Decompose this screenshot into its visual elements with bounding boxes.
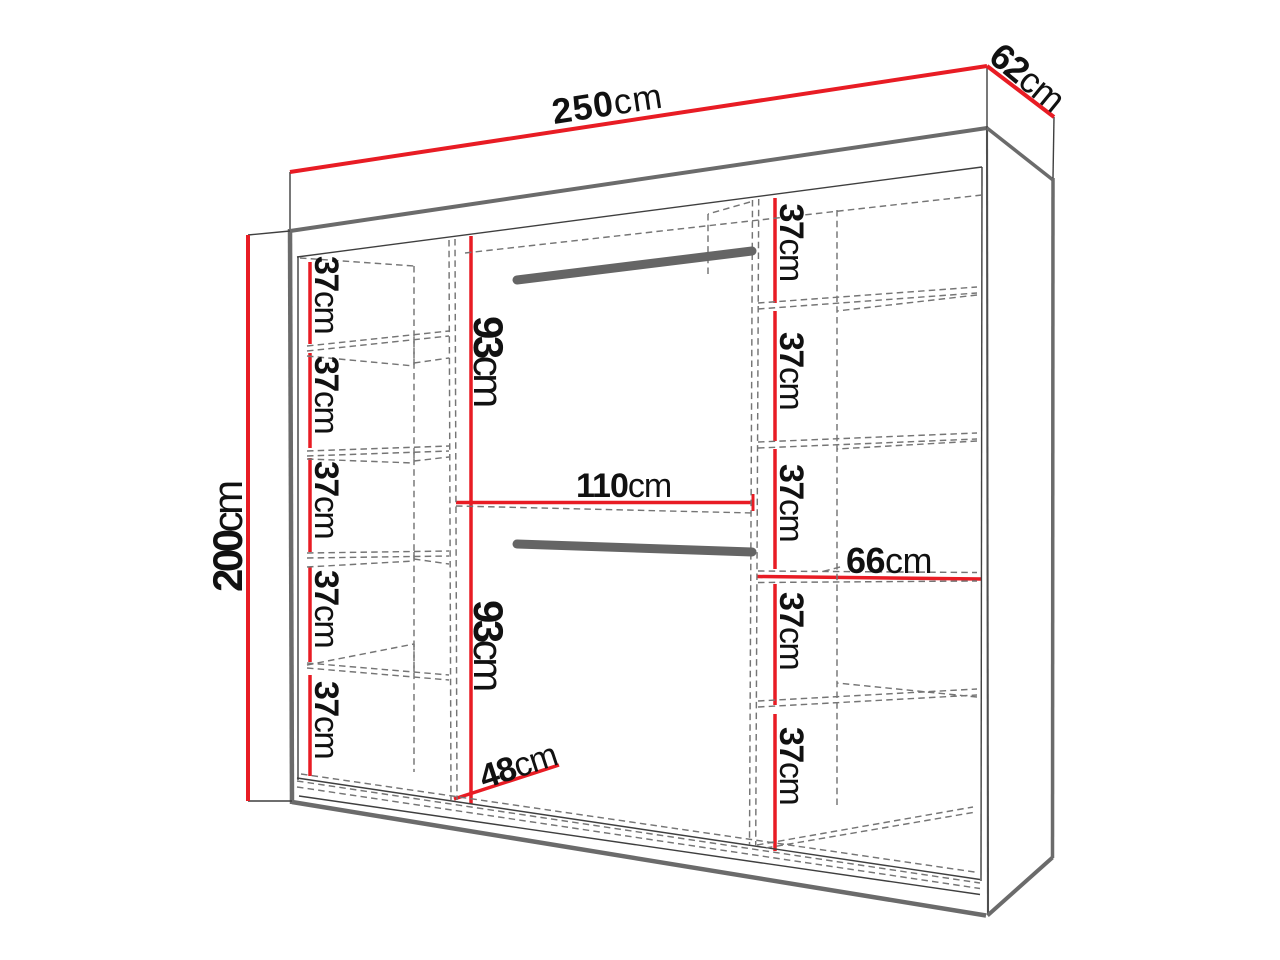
svg-text:37cm: 37cm	[772, 592, 810, 669]
svg-text:37cm: 37cm	[772, 727, 810, 804]
svg-text:37cm: 37cm	[307, 461, 345, 538]
svg-text:93cm: 93cm	[465, 600, 512, 690]
svg-text:200cm: 200cm	[204, 482, 251, 592]
svg-text:37cm: 37cm	[772, 464, 810, 541]
svg-text:37cm: 37cm	[772, 332, 810, 409]
svg-text:93cm: 93cm	[465, 316, 512, 406]
svg-text:37cm: 37cm	[307, 356, 345, 433]
svg-text:37cm: 37cm	[307, 570, 345, 647]
svg-text:37cm: 37cm	[772, 204, 810, 281]
svg-text:37cm: 37cm	[307, 681, 345, 758]
svg-text:66cm: 66cm	[846, 540, 932, 581]
svg-text:37cm: 37cm	[307, 256, 345, 333]
svg-text:110cm: 110cm	[576, 467, 671, 505]
